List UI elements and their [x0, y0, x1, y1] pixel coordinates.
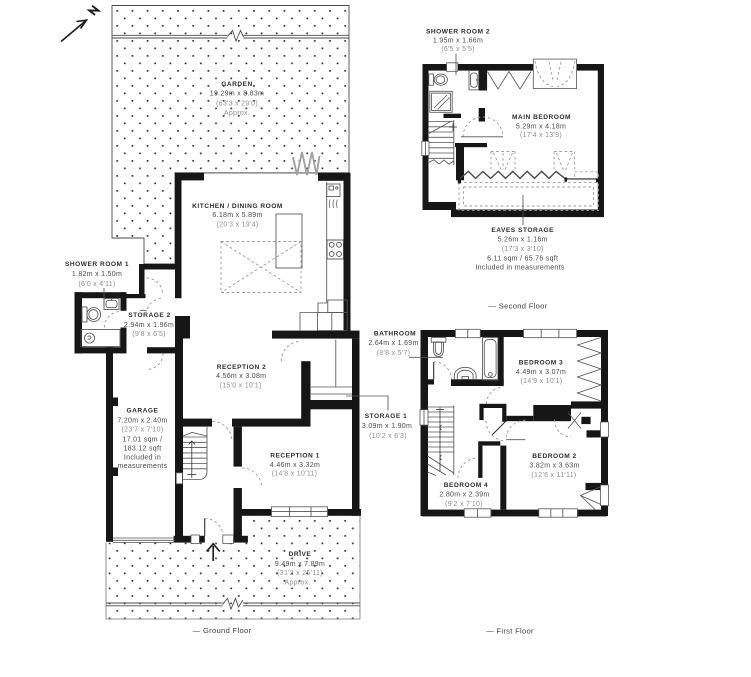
svg-text:BEDROOM 3: BEDROOM 3 — [519, 360, 563, 367]
svg-text:1.95m x 1.66m: 1.95m x 1.66m — [433, 37, 483, 44]
svg-text:— First Floor: — First Floor — [486, 627, 534, 636]
svg-text:EAVES STORAGE: EAVES STORAGE — [491, 227, 554, 234]
svg-text:1.82m x 1.50m: 1.82m x 1.50m — [72, 271, 122, 278]
svg-text:2.94m x 1.96m: 2.94m x 1.96m — [124, 322, 174, 329]
svg-text:(14'9 x 10'1): (14'9 x 10'1) — [521, 378, 563, 385]
svg-text:(20'3 x 19'4): (20'3 x 19'4) — [217, 221, 259, 228]
svg-text:(23'7 x 7'10): (23'7 x 7'10) — [122, 427, 164, 434]
svg-text:BEDROOM 2: BEDROOM 2 — [532, 453, 576, 460]
svg-text:STORAGE 2: STORAGE 2 — [128, 312, 171, 319]
svg-text:(8'8 x 5'7): (8'8 x 5'7) — [377, 350, 411, 357]
svg-text:RECEPTION 2: RECEPTION 2 — [217, 364, 266, 371]
svg-text:MAIN BEDROOM: MAIN BEDROOM — [512, 114, 571, 121]
svg-text:BEDROOM 4: BEDROOM 4 — [444, 482, 488, 489]
svg-text:3.09m x 1.90m: 3.09m x 1.90m — [362, 423, 412, 430]
svg-text:RECEPTION 1: RECEPTION 1 — [270, 452, 319, 459]
svg-text:(10'2 x 6'3): (10'2 x 6'3) — [369, 433, 407, 440]
svg-text:GARAGE: GARAGE — [127, 408, 159, 415]
svg-text:4.46m x 3.32m: 4.46m x 3.32m — [270, 462, 320, 469]
svg-text:(14'8 x 10'11): (14'8 x 10'11) — [272, 471, 318, 478]
svg-text:(17'4 x 13'9): (17'4 x 13'9) — [520, 132, 562, 139]
svg-text:GARDEN: GARDEN — [221, 81, 253, 88]
svg-text:3.82m x 3.63m: 3.82m x 3.63m — [529, 463, 579, 470]
svg-text:KITCHEN / DINING ROOM: KITCHEN / DINING ROOM — [192, 203, 283, 210]
svg-text:5.29m x 4.18m: 5.29m x 4.18m — [516, 123, 566, 130]
svg-text:(6'0 x 4'11): (6'0 x 4'11) — [78, 281, 115, 288]
svg-text:(12'6 x 11'11): (12'6 x 11'11) — [531, 472, 576, 479]
svg-text:(63'3 x 29'0): (63'3 x 29'0) — [216, 100, 258, 107]
svg-text:— Ground Floor: — Ground Floor — [193, 626, 252, 635]
svg-text:7.20m x 2.40m: 7.20m x 2.40m — [117, 417, 167, 424]
svg-text:4.49m x 3.07m: 4.49m x 3.07m — [516, 369, 566, 376]
svg-text:(17'3 x 3'10): (17'3 x 3'10) — [502, 246, 544, 253]
svg-text:(9'2 x 7'10): (9'2 x 7'10) — [445, 501, 483, 508]
svg-text:SHOWER ROOM 1: SHOWER ROOM 1 — [65, 261, 129, 268]
svg-text:183.12 sqft: 183.12 sqft — [124, 445, 162, 452]
svg-text:9.49m x 7.89m: 9.49m x 7.89m — [275, 561, 325, 568]
svg-text:(31'2 x 25'11): (31'2 x 25'11) — [277, 570, 323, 577]
svg-text:(9'8 x 6'5): (9'8 x 6'5) — [132, 331, 166, 338]
svg-text:2.80m x 2.39m: 2.80m x 2.39m — [439, 492, 489, 499]
svg-text:STORAGE 1: STORAGE 1 — [365, 413, 408, 420]
svg-text:6.11 sqm / 65.76 sqft: 6.11 sqm / 65.76 sqft — [487, 256, 558, 263]
svg-text:— Second Floor: — Second Floor — [488, 301, 547, 310]
svg-text:6.18m x 5.89m: 6.18m x 5.89m — [212, 212, 262, 219]
svg-text:SHOWER ROOM 2: SHOWER ROOM 2 — [426, 29, 490, 36]
svg-text:measurements: measurements — [118, 463, 168, 470]
svg-text:17.01 sqm /: 17.01 sqm / — [123, 436, 163, 443]
svg-text:5.26m x 1.16m: 5.26m x 1.16m — [498, 237, 548, 244]
svg-text:Included in: Included in — [124, 454, 161, 461]
svg-text:Included in measurements: Included in measurements — [475, 264, 564, 271]
svg-text:(6'5 x 5'5): (6'5 x 5'5) — [441, 46, 475, 53]
svg-text:BATHROOM: BATHROOM — [374, 331, 416, 338]
svg-text:2.64m x 1.69m: 2.64m x 1.69m — [368, 340, 418, 347]
svg-text:Approx.: Approx. — [224, 110, 250, 117]
svg-text:DRIVE: DRIVE — [289, 551, 312, 558]
svg-text:19.29m x 8.83m: 19.29m x 8.83m — [210, 91, 264, 98]
svg-text:4.56m x 3.08m: 4.56m x 3.08m — [216, 373, 266, 380]
svg-text:Approx.: Approx. — [284, 579, 310, 586]
svg-text:(15'0 x 10'1): (15'0 x 10'1) — [220, 382, 262, 389]
